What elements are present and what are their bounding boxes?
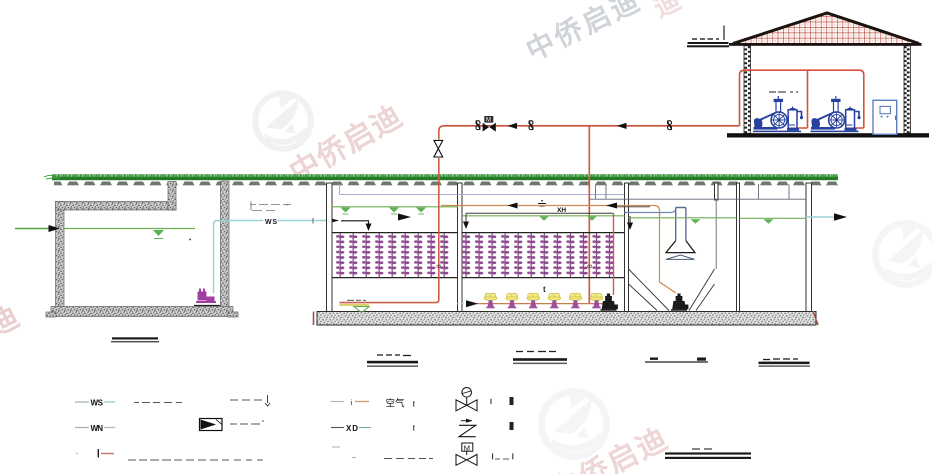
svg-text:ℓ: ℓ <box>412 400 416 409</box>
svg-text:XD: XD <box>346 424 358 433</box>
svg-text:8: 8 <box>436 264 443 268</box>
svg-text:M: M <box>464 443 470 452</box>
svg-text:XH: XH <box>557 207 566 214</box>
svg-text:迪: 迪 <box>649 0 686 23</box>
svg-text:WS: WS <box>91 398 104 407</box>
svg-text:ℓ: ℓ <box>412 424 416 433</box>
svg-text:迪: 迪 <box>0 300 24 343</box>
svg-text:WN: WN <box>91 424 104 433</box>
svg-text:中侨启迪: 中侨启迪 <box>521 0 646 67</box>
svg-text:i: i <box>351 400 353 407</box>
svg-text:t: t <box>543 285 546 294</box>
svg-text:空气: 空气 <box>386 398 406 410</box>
svg-text:WS: WS <box>265 219 277 226</box>
svg-text:M: M <box>486 118 491 124</box>
